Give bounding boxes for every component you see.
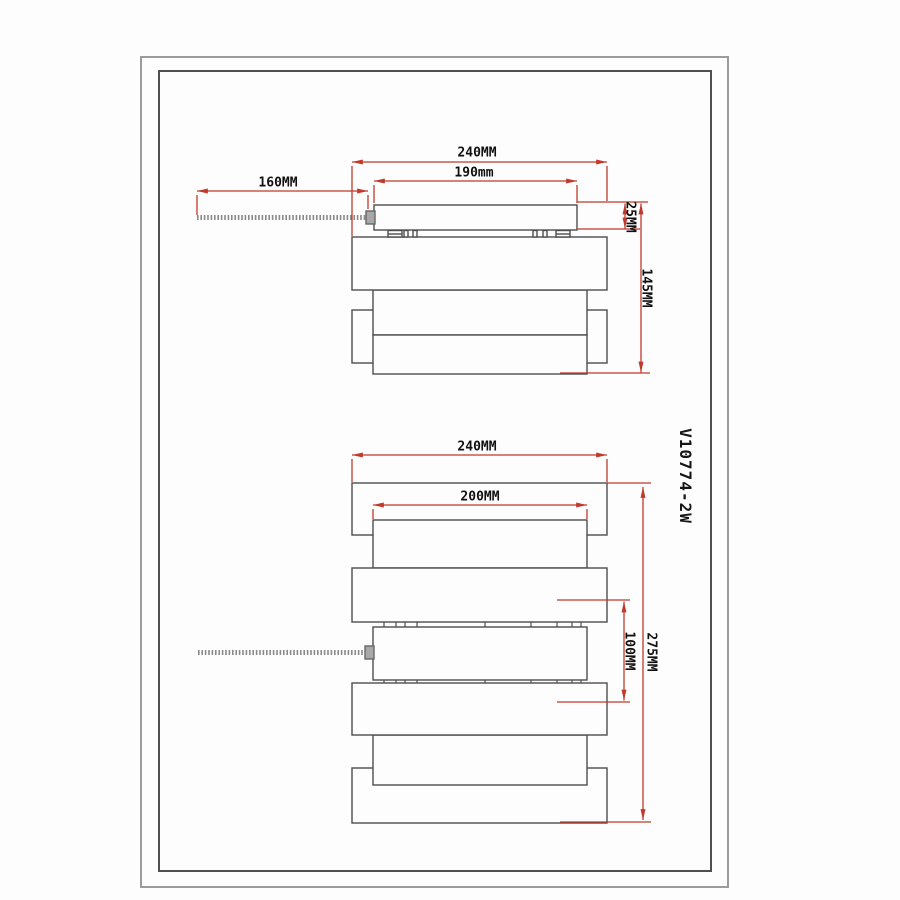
dim-label-slat-spacing: 100MM [623,631,636,670]
drawing-sheet: 240MM 190mm 160MM 25MM 145MM 240MM 200MM… [0,0,900,900]
dim-label-canopy-thickness: 25MM [624,201,637,232]
slab-outline [373,290,587,335]
mounting-feet [388,231,570,238]
rod-connector [365,646,374,659]
canopy-outline [374,205,577,230]
slab-outline [373,735,587,785]
top-view-drawing [197,205,607,374]
slab-outline [373,335,587,374]
dim-label-overall-width-front: 240MM [457,441,496,454]
slab-outline [373,627,587,680]
rod-connector [366,211,375,224]
dim-label-overall-width-top: 240MM [457,147,496,160]
slab-outline [373,520,587,568]
dim-label-overall-height: 275MM [645,632,658,671]
slab-outline [352,683,607,735]
dim-label-arm-length: 160MM [258,177,297,190]
product-code: V10774-2W [677,428,693,524]
front-view-drawing [198,483,607,823]
slab-outline [352,237,607,290]
dim-label-inner-width: 200MM [460,491,499,504]
technical-drawing [0,0,900,900]
slab-outline [352,568,607,622]
dim-label-total-depth: 145MM [640,268,653,307]
dim-label-canopy-width: 190mm [454,167,493,180]
